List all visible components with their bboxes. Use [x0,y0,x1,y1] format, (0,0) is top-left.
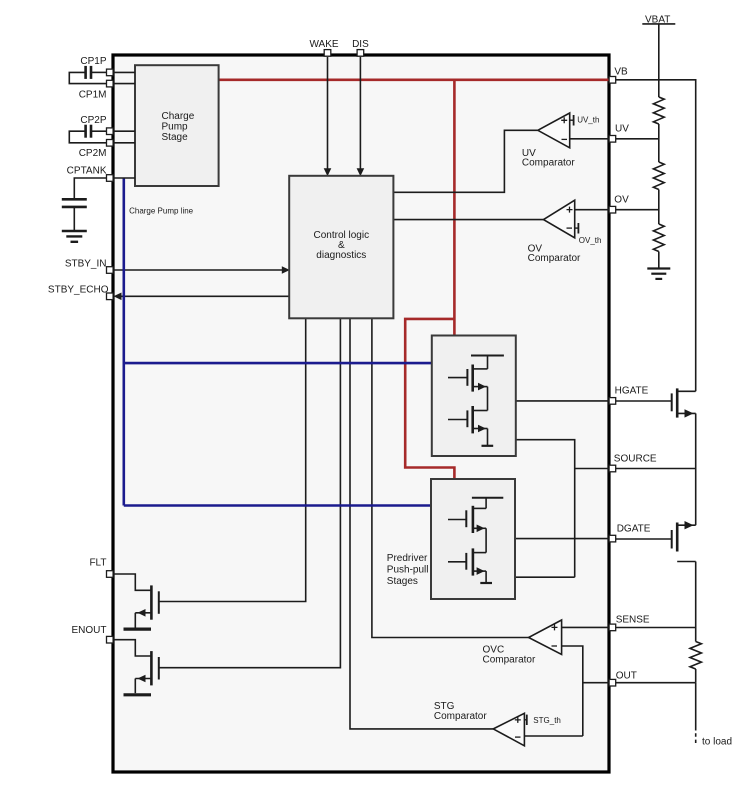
svg-text:WAKE: WAKE [309,39,338,50]
svg-text:Charge Pump line: Charge Pump line [129,207,194,216]
svg-text:STBY_ECHO: STBY_ECHO [48,285,109,296]
svg-text:CP1M: CP1M [79,89,107,100]
svg-text:Pump: Pump [162,121,189,132]
svg-text:OV: OV [614,194,629,205]
svg-text:HGATE: HGATE [615,386,649,397]
svg-text:CP2M: CP2M [79,148,107,159]
svg-text:Charge: Charge [162,111,195,122]
svg-text:CPTANK: CPTANK [67,165,107,176]
svg-text:UV: UV [615,123,629,134]
svg-text:Stages: Stages [387,576,418,587]
svg-text:UV_th: UV_th [577,115,599,124]
svg-text:Predriver: Predriver [387,553,428,564]
svg-text:SENSE: SENSE [616,615,650,626]
svg-text:Comparator: Comparator [528,253,581,264]
svg-text:SOURCE: SOURCE [614,454,657,465]
svg-text:Comparator: Comparator [483,654,536,665]
svg-text:to load: to load [702,737,732,748]
svg-text:Comparator: Comparator [434,711,487,722]
svg-text:STG: STG [434,701,455,712]
svg-text:STBY_IN: STBY_IN [65,259,107,270]
svg-text:Comparator: Comparator [522,158,575,169]
svg-text:OV_th: OV_th [579,236,602,245]
svg-text:STG_th: STG_th [533,716,561,725]
svg-text:ENOUT: ENOUT [72,625,107,636]
svg-text:DGATE: DGATE [617,523,651,534]
svg-text:Push-pull: Push-pull [387,565,429,576]
svg-text:DIS: DIS [352,39,369,50]
svg-text:Stage: Stage [162,132,189,143]
svg-text:VB: VB [614,66,628,77]
svg-text:FLT: FLT [89,558,106,569]
svg-text:CP2P: CP2P [80,115,106,126]
svg-text:CP1P: CP1P [80,56,106,67]
svg-text:diagnostics: diagnostics [316,250,366,261]
svg-text:OUT: OUT [616,671,637,682]
